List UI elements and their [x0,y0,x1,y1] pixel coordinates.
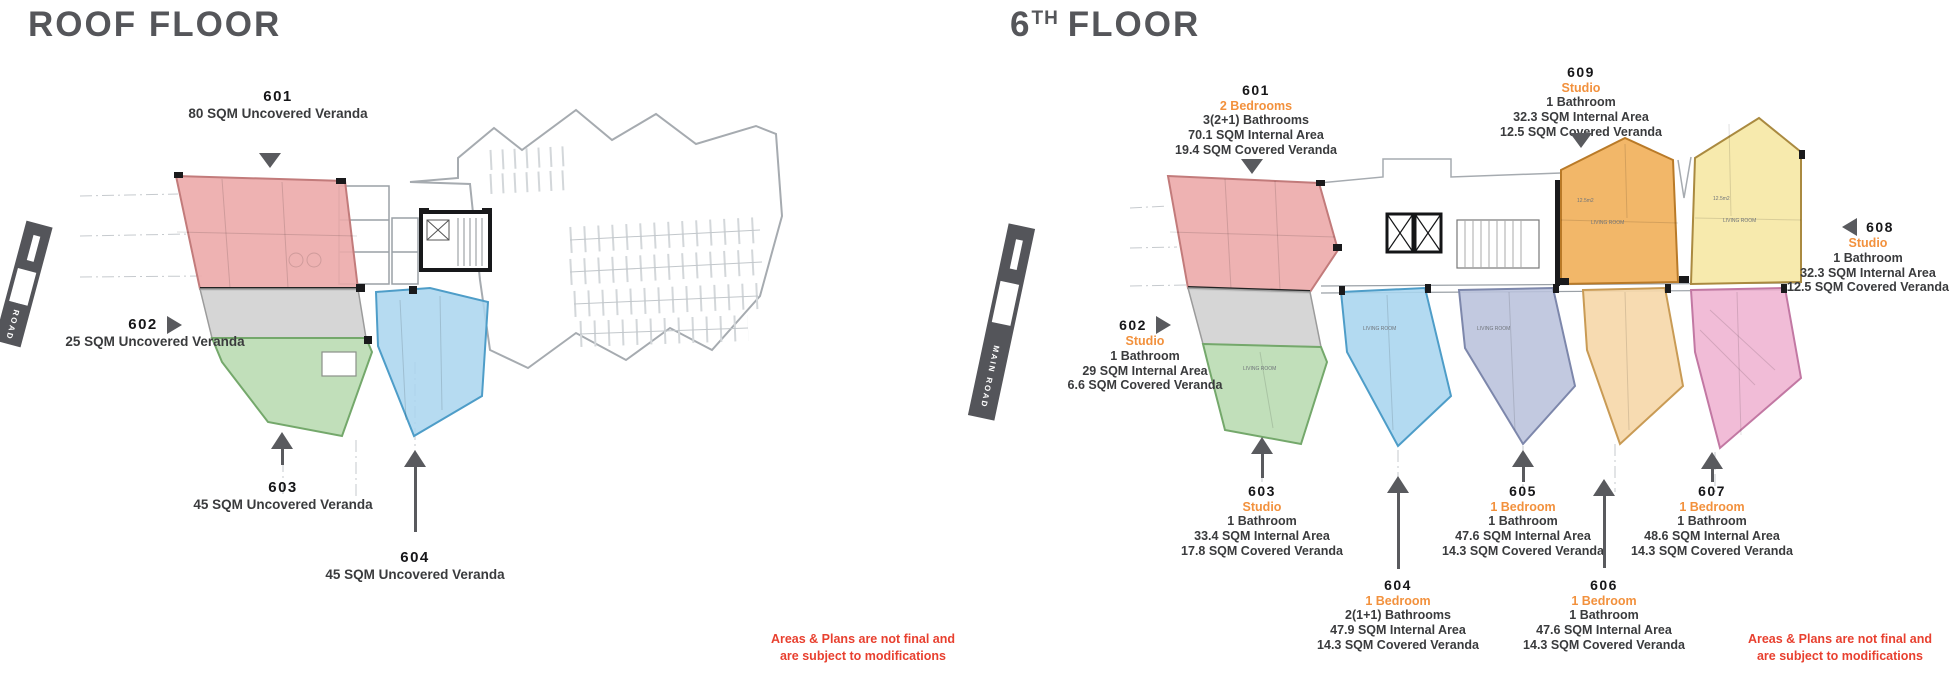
roof-room-box [322,352,356,376]
unit-area: 45 SQM Uncovered Veranda [158,497,408,513]
unit-label-roof-604: 604 45 SQM Uncovered Veranda [290,549,540,583]
unit-604-region [376,288,488,436]
svg-text:12.5m2: 12.5m2 [1713,196,1730,202]
arrow-down-icon [1241,159,1263,174]
unit-number-row: 602 [1020,316,1270,334]
svg-text:LIVING ROOM: LIVING ROOM [1591,220,1624,226]
arrow-down-icon [1570,133,1592,148]
svg-text:LIVING ROOM: LIVING ROOM [1723,218,1756,224]
arrow-up-icon [271,432,293,465]
road-marking [1009,239,1022,270]
road-gap [992,281,1019,326]
unit-number: 603 [158,479,408,497]
unit-605-region [1459,288,1575,444]
unit-label-6f-601: 601 2 Bedrooms 3(2+1) Bathrooms 70.1 SQM… [1126,82,1386,158]
title-text: ROOF FLOOR [28,5,281,44]
unit-area: 45 SQM Uncovered Veranda [290,567,540,583]
disclaimer-note: Areas & Plans are not final and are subj… [757,631,969,665]
main-road-label: MAIN ROAD [979,344,1001,409]
road-marking [26,235,39,262]
svg-text:LIVING ROOM: LIVING ROOM [1477,326,1510,332]
arrow-up-icon [1701,452,1723,482]
floor-plans-sheet: ROOF FLOOR [0,0,1959,688]
arrow-right-icon [167,316,182,334]
unit-number: 604 [290,549,540,567]
unit-609-region [1561,138,1678,284]
unit-label-6f-609: 609 Studio 1 Bathroom 32.3 SQM Internal … [1451,64,1711,140]
unit-number: 602 [128,316,158,334]
unit-607-region [1691,288,1801,448]
arrow-left-icon [1842,218,1857,236]
arrow-up-icon [1593,479,1615,568]
arrow-up-icon [1512,450,1534,482]
arrow-down-icon [259,153,281,168]
disclaimer-note: Areas & Plans are not final and are subj… [1734,631,1946,665]
unit-label-roof-603: 603 45 SQM Uncovered Veranda [158,479,408,513]
arrow-up-icon [404,450,426,532]
svg-text:LIVING ROOM: LIVING ROOM [1363,326,1396,332]
stair-core [421,212,490,270]
unit-label-roof-602: 602 25 SQM Uncovered Veranda [30,316,280,350]
unit-label-6f-608: 608 Studio 1 Bathroom 32.3 SQM Internal … [1782,218,1954,295]
unit-label-6f-603: 603 Studio 1 Bathroom 33.4 SQM Internal … [1137,483,1387,559]
unit-606-region [1583,288,1683,444]
page-title-6th-floor: 6THFLOOR [1010,5,1200,45]
unit-label-roof-601: 601 80 SQM Uncovered Veranda [148,88,408,122]
unit-number-row: 602 [30,316,280,334]
floor-plan-drawing-roof [70,100,830,500]
elevator-core [1387,180,1560,286]
arrow-right-icon [1156,316,1171,334]
unit-area: 25 SQM Uncovered Veranda [30,334,280,350]
unit-label-6f-607: 607 1 Bedroom 1 Bathroom 48.6 SQM Intern… [1587,483,1837,559]
unit-number-row: 608 [1782,218,1954,236]
unit-label-6f-602: 602 Studio 1 Bathroom 29 SQM Internal Ar… [1020,316,1270,393]
unit-601-region [1168,176,1338,292]
arrow-up-icon [1387,476,1409,569]
unit-area: 80 SQM Uncovered Veranda [148,106,408,122]
svg-text:12.5m2: 12.5m2 [1577,198,1594,204]
page-title-roof-floor: ROOF FLOOR [28,5,281,45]
unit-604-region [1341,288,1451,446]
unit-number: 601 [148,88,408,106]
floor-plan-drawing-6th: LIVING ROOM 12.5m2 LIVING ROOM 12.5m2 LI… [1125,100,1845,500]
unit-label-6f-606: 606 1 Bedroom 1 Bathroom 47.6 SQM Intern… [1479,577,1729,653]
arrow-up-icon [1251,437,1273,478]
